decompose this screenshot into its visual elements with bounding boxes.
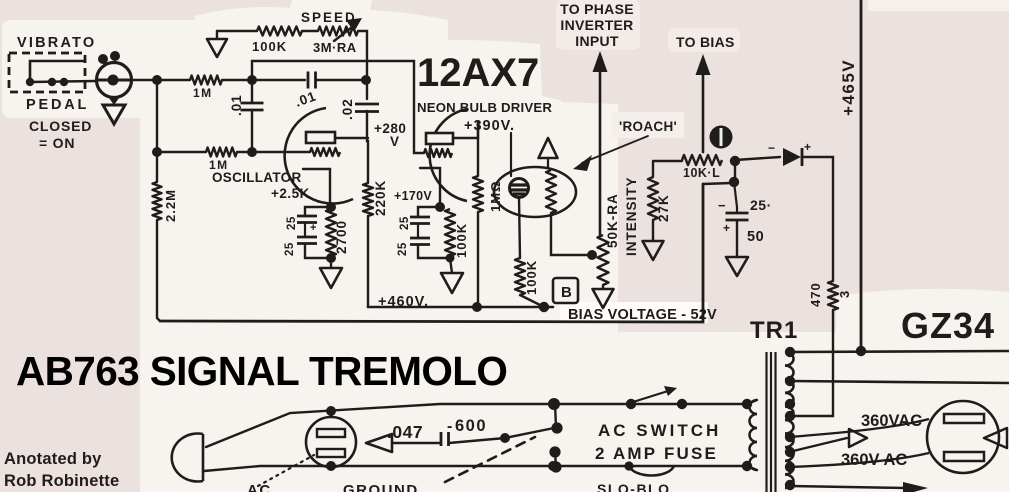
svg-text:2.2M: 2.2M — [163, 189, 178, 222]
svg-text:= ON: = ON — [39, 135, 75, 151]
svg-text:.02: .02 — [340, 98, 355, 120]
svg-text:INPUT: INPUT — [575, 33, 619, 49]
svg-text:12AX7: 12AX7 — [417, 51, 539, 95]
svg-text:+: + — [310, 222, 316, 234]
svg-text:−: − — [718, 198, 726, 213]
svg-text:+: + — [804, 140, 812, 154]
svg-text:'ROACH': 'ROACH' — [619, 119, 677, 134]
svg-text:TR1: TR1 — [750, 317, 798, 344]
svg-text:SLO-BLO: SLO-BLO — [597, 481, 671, 492]
svg-text:50K-RA: 50K-RA — [605, 193, 620, 248]
svg-text:.01: .01 — [229, 94, 244, 116]
svg-text:2700: 2700 — [334, 220, 349, 254]
svg-text:+2.5K: +2.5K — [271, 186, 310, 201]
svg-text:BIAS VOLTAGE - 52V: BIAS VOLTAGE - 52V — [568, 307, 717, 323]
svg-text:B: B — [561, 284, 572, 301]
svg-text:+170V: +170V — [394, 189, 432, 203]
svg-text:25·: 25· — [750, 197, 772, 213]
svg-text:AC: AC — [247, 482, 272, 492]
svg-text:100K: 100K — [524, 260, 539, 295]
svg-text:+390V.: +390V. — [464, 118, 515, 134]
svg-text:PEDAL: PEDAL — [26, 97, 89, 113]
svg-text:+465V: +465V — [839, 59, 858, 116]
svg-text:INVERTER: INVERTER — [560, 17, 633, 33]
svg-text:360VAC: 360VAC — [861, 412, 922, 430]
svg-text:NEON BULB DRIVER: NEON BULB DRIVER — [417, 100, 552, 115]
svg-text:TO BIAS: TO BIAS — [676, 34, 735, 50]
svg-text:AC SWITCH: AC SWITCH — [598, 421, 721, 440]
svg-text:25: 25 — [284, 242, 296, 256]
svg-text:25: 25 — [399, 216, 411, 230]
svg-text:AB763 SIGNAL TREMOLO: AB763 SIGNAL TREMOLO — [16, 348, 507, 394]
svg-text:100K: 100K — [454, 223, 469, 258]
svg-text:Rob Robinette: Rob Robinette — [4, 472, 119, 490]
svg-text:+: + — [723, 221, 731, 235]
svg-text:V: V — [390, 134, 400, 149]
svg-text:2 AMP FUSE: 2 AMP FUSE — [595, 444, 718, 463]
svg-text:-: - — [447, 418, 453, 435]
svg-text:GZ34: GZ34 — [901, 305, 995, 346]
svg-text:1M: 1M — [193, 86, 213, 100]
svg-text:.047: .047 — [387, 422, 423, 442]
svg-text:3M·RA: 3M·RA — [313, 40, 357, 55]
svg-text:VIBRATO: VIBRATO — [17, 35, 96, 51]
svg-text:470: 470 — [808, 282, 823, 307]
svg-text:25: 25 — [397, 242, 409, 256]
svg-text:GROUND: GROUND — [343, 482, 419, 492]
svg-text:27K: 27K — [656, 194, 671, 222]
svg-text:CLOSED: CLOSED — [29, 118, 92, 134]
svg-text:25: 25 — [286, 216, 298, 230]
svg-text:3: 3 — [837, 290, 852, 298]
svg-text:100K: 100K — [252, 39, 287, 54]
svg-text:TO PHASE: TO PHASE — [560, 1, 634, 17]
svg-text:Anotated by: Anotated by — [4, 450, 102, 468]
svg-text:50: 50 — [747, 229, 764, 245]
svg-text:220K: 220K — [373, 180, 388, 216]
svg-text:INTENSITY: INTENSITY — [624, 176, 639, 256]
svg-text:360V AC: 360V AC — [841, 451, 907, 469]
svg-text:−: − — [768, 141, 776, 155]
svg-text:600: 600 — [455, 417, 487, 435]
svg-text:10K·L: 10K·L — [683, 166, 720, 180]
